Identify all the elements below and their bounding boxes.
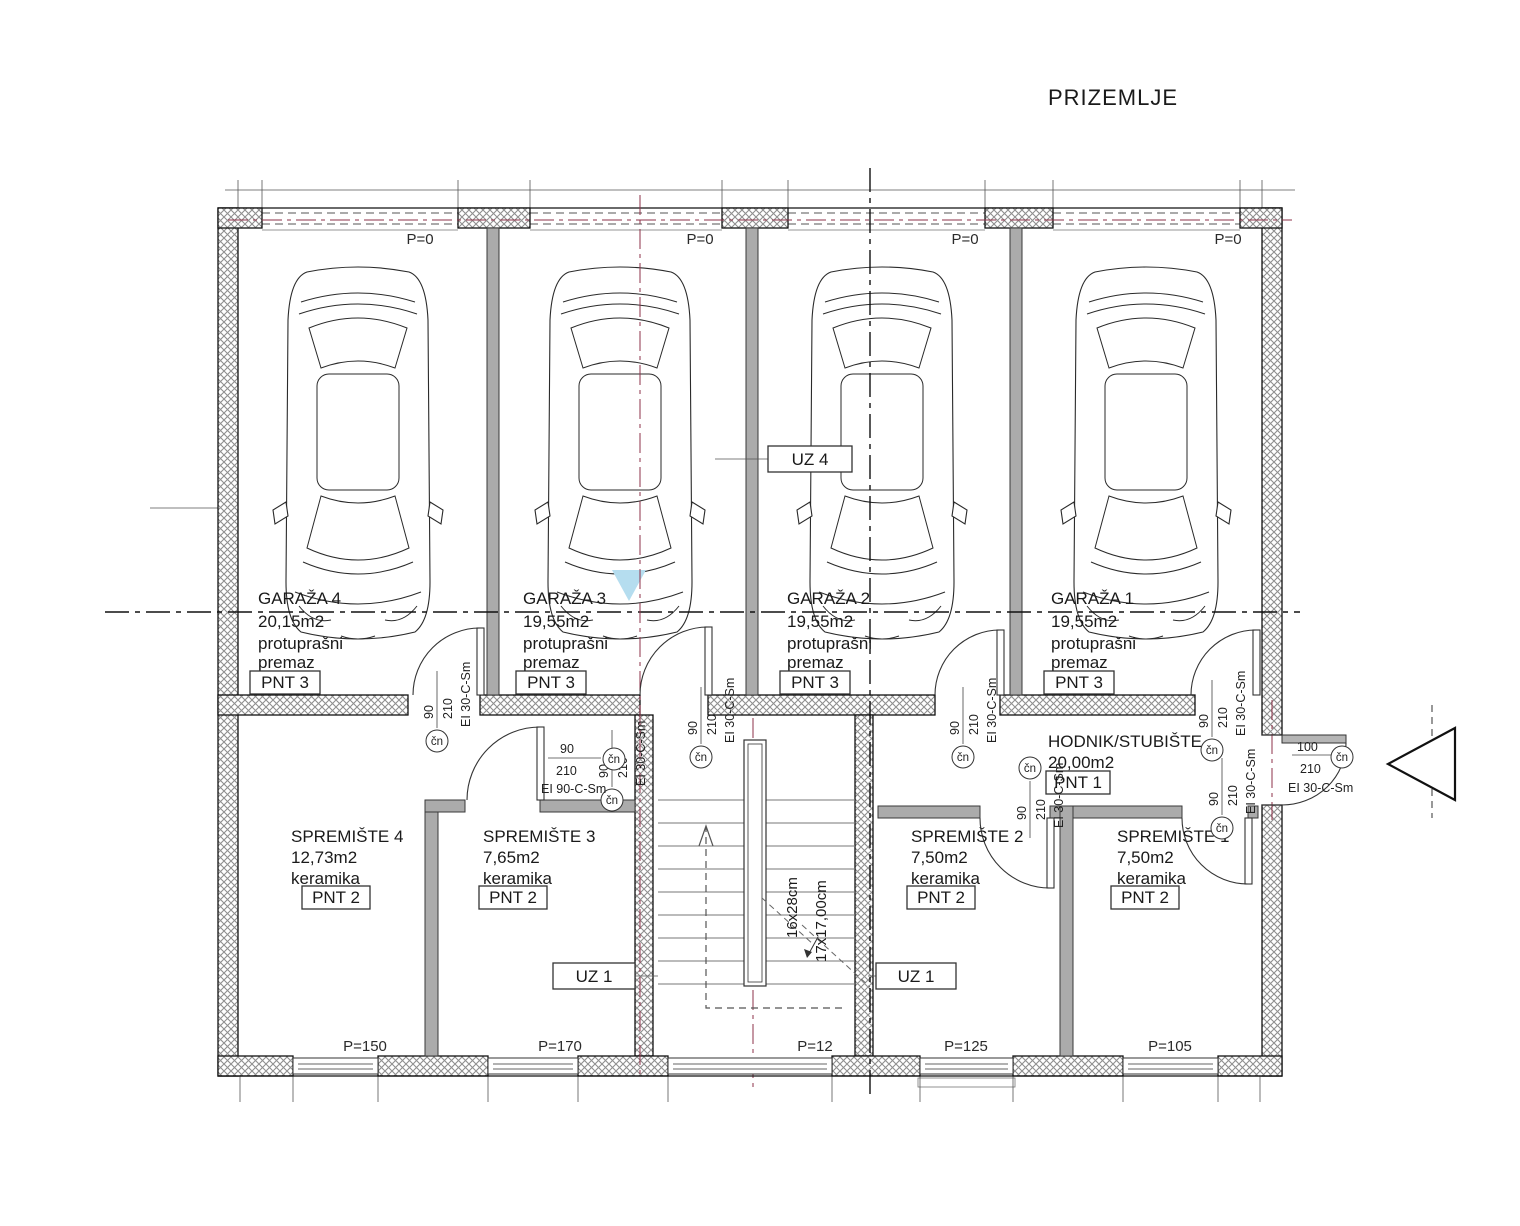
room-finish: premaz <box>523 653 580 672</box>
cn-marker: čn <box>1024 763 1036 775</box>
window-spremiste-4 <box>293 1058 378 1074</box>
floor-plan-svg: PRIZEMLJE <box>0 0 1520 1226</box>
window-spremiste-1 <box>1123 1058 1218 1074</box>
pnt-label: PNT 3 <box>1055 673 1103 692</box>
room-finish: protuprašni <box>1051 634 1136 653</box>
room-name: GARAŽA 3 <box>523 589 606 608</box>
garage-4-door <box>413 628 484 695</box>
door-height: 210 <box>967 714 981 735</box>
room-finish: keramika <box>1117 869 1187 888</box>
zone-label: UZ 1 <box>576 967 613 986</box>
door-height: 210 <box>705 714 719 735</box>
pnt-label: PNT 2 <box>1121 888 1169 907</box>
room-label-garaza-2: GARAŽA 2 19,55m2 protuprašni premaz PNT … <box>780 589 872 694</box>
cn-marker: čn <box>1216 823 1228 835</box>
door-height: 210 <box>1300 762 1321 776</box>
room-label-garaza-3: GARAŽA 3 19,55m2 protuprašni premaz PNT … <box>516 589 608 694</box>
car-icon-garage-4 <box>273 267 443 639</box>
staircase: 16x28cm 17x17,00cm <box>658 740 870 1008</box>
zone-box-uz1-right: UZ 1 <box>868 963 956 989</box>
door-height: 210 <box>1034 799 1048 820</box>
spremiste-3-door <box>467 727 544 800</box>
room-name: SPREMIŠTE 3 <box>483 827 595 846</box>
room-label-spremiste-4: SPREMIŠTE 4 12,73m2 keramika PNT 2 <box>291 827 403 909</box>
bottom-dimension-ticks <box>240 1076 1260 1102</box>
cn-marker: čn <box>695 752 707 764</box>
room-area: 19,55m2 <box>1051 612 1117 631</box>
car-icon-garage-1 <box>1061 267 1231 639</box>
pnt-label: PNT 2 <box>489 888 537 907</box>
room-name: GARAŽA 1 <box>1051 589 1134 608</box>
zone-label: UZ 4 <box>792 450 829 469</box>
room-area: 7,50m2 <box>1117 848 1174 867</box>
room-name: HODNIK/STUBIŠTE <box>1048 732 1202 751</box>
door-width: 90 <box>1207 792 1221 806</box>
zone-label: UZ 1 <box>898 967 935 986</box>
room-finish: keramika <box>483 869 553 888</box>
room-area: 12,73m2 <box>291 848 357 867</box>
window-staircase <box>668 1058 832 1074</box>
stair-dim-tread: 16x28cm <box>784 877 801 938</box>
door-width: 90 <box>1015 806 1029 820</box>
pnt-label: PNT 3 <box>791 673 839 692</box>
door-width: 90 <box>1197 714 1211 728</box>
page-title: PRIZEMLJE <box>1048 85 1178 110</box>
pnt-label: PNT 3 <box>261 673 309 692</box>
door-height: 210 <box>1216 707 1230 728</box>
stair-dim-riser: 17x17,00cm <box>813 880 830 962</box>
door-rating: EI 30-C-Sm <box>1288 781 1353 795</box>
room-area: 7,50m2 <box>911 848 968 867</box>
door-height: 210 <box>1226 785 1240 806</box>
door-annotation-spremiste-3: 90 210 čn EI 90-C-Sm <box>541 742 625 796</box>
door-width: 90 <box>422 705 436 719</box>
room-finish: protuprašni <box>787 634 872 653</box>
room-area: 20,15m2 <box>258 612 324 631</box>
room-label-garaza-4: GARAŽA 4 20,15m2 protuprašni premaz PNT … <box>250 589 343 694</box>
entrance-arrow <box>1388 705 1455 818</box>
door-annotation-entrance: 100 210 čn EI 30-C-Sm <box>1288 740 1353 795</box>
room-finish: keramika <box>911 869 981 888</box>
door-width: 90 <box>948 721 962 735</box>
cn-marker: čn <box>608 754 620 766</box>
room-finish: premaz <box>787 653 844 672</box>
window-spremiste-2 <box>918 1058 1015 1087</box>
room-label-garaza-1: GARAŽA 1 19,55m2 protuprašni premaz PNT … <box>1044 589 1136 694</box>
room-finish: protuprašni <box>523 634 608 653</box>
door-annotation-garage-2: čn 90 210 EI 30-C-Sm <box>948 678 999 768</box>
door-height: 210 <box>556 764 577 778</box>
door-rating: EI 30-C-Sm <box>723 678 737 743</box>
door-annotation-garage-4: čn 90 210 EI 30-C-Sm <box>422 662 473 752</box>
door-rating: EI 30-C-Sm <box>459 662 473 727</box>
room-name: GARAŽA 2 <box>787 589 870 608</box>
zone-box-uz4: UZ 4 <box>715 446 852 472</box>
level-label: P=125 <box>944 1038 988 1055</box>
cn-marker: čn <box>957 752 969 764</box>
floor-plan-page: PRIZEMLJE <box>0 0 1520 1226</box>
room-finish: keramika <box>291 869 361 888</box>
room-name: SPREMIŠTE 4 <box>291 827 403 846</box>
door-width: 100 <box>1297 740 1318 754</box>
level-label: P=170 <box>538 1038 582 1055</box>
level-label: P=0 <box>951 231 978 248</box>
level-label: P=105 <box>1148 1038 1192 1055</box>
cn-marker: čn <box>1336 752 1348 764</box>
room-area: 7,65m2 <box>483 848 540 867</box>
level-label: P=0 <box>406 231 433 248</box>
room-label-spremiste-1: SPREMIŠTE 1 7,50m2 keramika PNT 2 <box>1111 827 1229 909</box>
door-rating: EI 90-C-Sm <box>541 782 606 796</box>
room-area: 19,55m2 <box>523 612 589 631</box>
room-name: GARAŽA 4 <box>258 589 341 608</box>
room-label-spremiste-2: SPREMIŠTE 2 7,50m2 keramika PNT 2 <box>907 827 1023 909</box>
room-area: 19,55m2 <box>787 612 853 631</box>
cn-marker: čn <box>1206 745 1218 757</box>
door-rating: EI 30-C-Sm <box>1234 671 1248 736</box>
pnt-label: PNT 2 <box>312 888 360 907</box>
door-rating: EI 30-C-Sm <box>985 678 999 743</box>
level-label: P=0 <box>686 231 713 248</box>
cn-marker: čn <box>431 736 443 748</box>
level-label: P=12 <box>797 1038 832 1055</box>
door-annotation-spremiste-2: čn 90 210 EI 30-C-Sm <box>1015 757 1066 838</box>
door-rating: EI 30-C-Sm <box>1052 763 1066 828</box>
level-labels-top: P=0 P=0 P=0 P=0 <box>406 231 1241 248</box>
level-label: P=0 <box>1214 231 1241 248</box>
room-label-hodnik: HODNIK/STUBIŠTE 20,00m2 PNT 1 <box>1046 732 1202 794</box>
pnt-label: PNT 3 <box>527 673 575 692</box>
garage-1-door <box>1191 630 1260 695</box>
door-width: 90 <box>560 742 574 756</box>
door-rating: EI 30-C-Sm <box>634 721 648 786</box>
room-label-spremiste-3: SPREMIŠTE 3 7,65m2 keramika PNT 2 <box>479 827 595 909</box>
door-rating: EI 30-C-Sm <box>1244 749 1258 814</box>
pnt-label: PNT 2 <box>917 888 965 907</box>
room-finish: premaz <box>258 653 315 672</box>
door-annotation-garage-1: čn 90 210 EI 30-C-Sm <box>1197 671 1248 761</box>
room-name: SPREMIŠTE 2 <box>911 827 1023 846</box>
window-spremiste-3 <box>488 1058 578 1074</box>
room-finish: premaz <box>1051 653 1108 672</box>
door-height: 210 <box>441 698 455 719</box>
level-label: P=150 <box>343 1038 387 1055</box>
room-finish: protuprašni <box>258 634 343 653</box>
door-width: 90 <box>686 721 700 735</box>
cn-marker: čn <box>606 795 618 807</box>
